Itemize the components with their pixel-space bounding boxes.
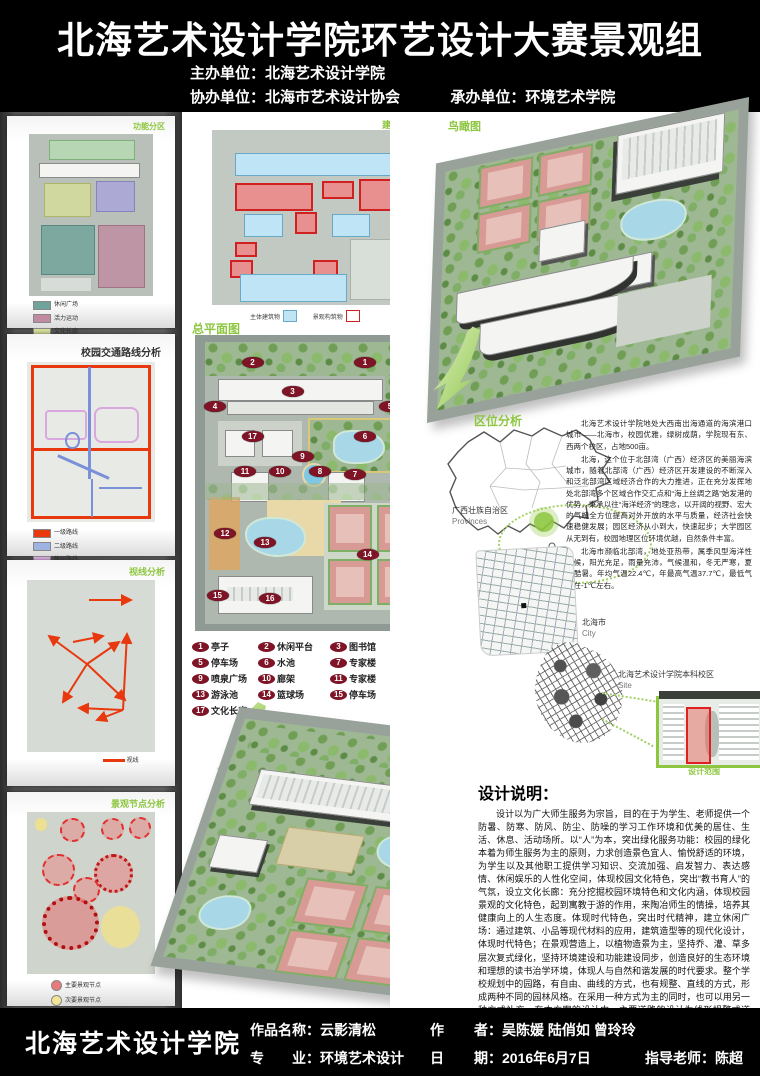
province-label: 广西壮族自治区 Provinces: [452, 506, 508, 528]
legend-item: 6水池: [258, 656, 330, 669]
plan-marker: 15: [207, 590, 229, 601]
plan-marker: 11: [234, 466, 256, 477]
sightline-arrows: [27, 580, 155, 752]
top-aerial-label: 鸟瞰图: [448, 118, 481, 134]
city-map-sketch: [475, 546, 578, 657]
legend-item: 11专家楼: [330, 672, 392, 685]
sightline-arrow-swatch: [103, 759, 125, 762]
city-label: 北海市 City: [582, 618, 606, 640]
location-paragraph: 北海艺术设计学院地处大西南出海通道的海滨港口城市——北海市，校园优雅，绿树成荫，…: [566, 418, 752, 452]
connector-line: [602, 718, 654, 747]
legend-item: 15停车场: [330, 688, 392, 701]
plan-marker: 3: [282, 386, 304, 397]
location-paragraph: 北海，这个位于北部湾（广西）经济区的美丽海滨城市，随着北部湾（广西）经济区开发建…: [566, 454, 752, 544]
authors: 作者：吴陈媛 陆俏如 曾玲玲: [430, 1020, 636, 1040]
functional-zoning-plan-image: [29, 134, 153, 296]
left-analysis-column: 功能分区 休闲广场活力运动文化长廊教学一区绿荫广场 校园交通路线分析: [0, 112, 182, 1008]
legend-item: 二级路线: [33, 542, 103, 552]
legend-item: 1亭子: [192, 640, 258, 653]
plan-marker: 16: [259, 593, 281, 604]
legend-item: 主体建筑物: [250, 310, 297, 322]
location-text: 北海艺术设计学院地处大西南出海通道的海滨港口城市——北海市，校园优雅，绿树成荫，…: [566, 418, 752, 593]
site-label: 北海艺术设计学院本科校区 Site: [618, 670, 714, 692]
legend-item: 3图书馆: [330, 640, 392, 653]
plan-marker: 6: [354, 431, 376, 442]
legend-item: 10廊架: [258, 672, 330, 685]
legend-item: 9喷泉广场: [192, 672, 258, 685]
design-scope-highlight: [686, 707, 711, 764]
date: 日期：2016年6月7日: [430, 1048, 591, 1068]
legend-item: 主要景观节点: [51, 980, 121, 991]
legend-item: 2休闲平台: [258, 640, 330, 653]
plan-marker: 7: [344, 469, 366, 480]
legend-item: 景观构筑物: [313, 310, 360, 322]
node-analysis-title: 景观节点分析: [111, 797, 165, 810]
plan-marker: 4: [204, 401, 226, 412]
node-plan-image: [27, 812, 155, 974]
undertaker: 承办单位：环境艺术学院: [450, 89, 615, 106]
sightline-plan-image: [27, 580, 155, 752]
traffic-analysis-plan-image: [27, 362, 155, 522]
traffic-analysis-title: 校园交通路线分析: [81, 344, 161, 359]
site-plan-thumbnail: [656, 696, 760, 768]
sightline-analysis-panel: 视线分析: [7, 560, 175, 786]
competition-poster: 北海艺术设计学院环艺设计大赛景观组 主办单位：北海艺术设计学院 协办单位：北海市…: [0, 0, 760, 1076]
sightline-analysis-title: 视线分析: [129, 565, 165, 578]
functional-zoning-title: 功能分区: [133, 121, 165, 132]
plan-marker: 9: [292, 451, 314, 462]
plan-marker: 13: [254, 537, 276, 548]
legend-item: 活力运动: [33, 314, 103, 324]
node-legend: 主要景观节点次要景观节点: [51, 980, 181, 1010]
header: 北海艺术设计学院环艺设计大赛景观组 主办单位：北海艺术设计学院 协办单位：北海市…: [0, 0, 760, 112]
plan-marker: 2: [242, 357, 264, 368]
location-paragraph: 北海市濒临北部湾，地处亚热带，属季风型海洋性气候，阳光充足，雨量充沛，气候温和，…: [566, 546, 752, 591]
poster-title: 北海艺术设计学院环艺设计大赛景观组: [57, 10, 703, 64]
sightline-legend-label: 视线: [127, 758, 139, 764]
work-title: 作品名称：云影清松: [250, 1020, 376, 1040]
plan-marker: 12: [214, 528, 236, 539]
legend-item: 次要景观节点: [51, 995, 121, 1006]
right-column: 鸟瞰图 区位分析: [390, 112, 760, 1008]
plan-marker: 17: [242, 431, 264, 442]
structure-legend: 主体建筑物 景观构筑物: [250, 310, 374, 322]
legend-item: 休闲广场: [33, 300, 103, 310]
sightline-legend: 视线: [103, 756, 139, 766]
design-scope-label: 设计范围: [688, 766, 720, 777]
co-organizer: 协办单位：北海市艺术设计协会: [190, 89, 400, 106]
legend-item: 5停车场: [192, 656, 258, 669]
traffic-analysis-panel: 校园交通路线分析 一级路线二级路线休闲路线绿地路线: [7, 334, 175, 556]
co-organizer-line: 协办单位：北海市艺术设计协会 承办单位：环境艺术学院: [190, 86, 615, 107]
legend-item: 7专家楼: [330, 656, 392, 669]
legend-item: 一级路线: [33, 528, 103, 538]
plan-marker: 1: [354, 357, 376, 368]
plan-marker: 14: [357, 549, 379, 560]
design-description-title: 设计说明：: [478, 780, 558, 804]
flow-arrow-icon: [418, 322, 484, 414]
school-name: 北海艺术设计学院: [25, 1024, 241, 1060]
footer: 北海艺术设计学院 作品名称：云影清松 专 业：环境艺术设计 作者：吴陈媛 陆俏如…: [0, 1008, 760, 1076]
plan-marker: 10: [269, 466, 291, 477]
functional-zoning-panel: 功能分区 休闲广场活力运动文化长廊教学一区绿荫广场: [7, 116, 175, 328]
advisor: 指导老师：陈超: [645, 1048, 743, 1068]
organizer-line: 主办单位：北海艺术设计学院: [190, 62, 385, 83]
major: 专 业：环境艺术设计: [250, 1048, 404, 1068]
plan-marker: 8: [309, 466, 331, 477]
node-analysis-panel: 景观节点分析 主要景观节点次要景观节点: [7, 792, 175, 1006]
